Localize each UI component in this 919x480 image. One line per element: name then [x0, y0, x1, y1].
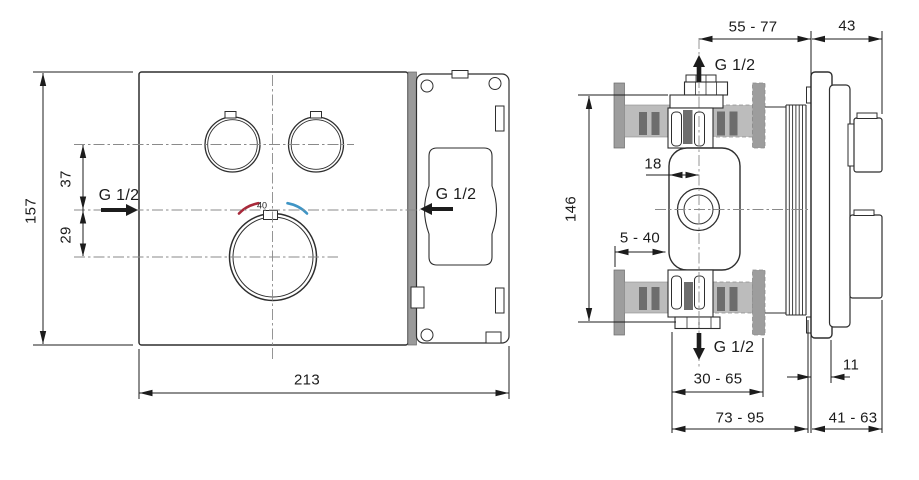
wall-flange-alt-top: [753, 83, 766, 148]
wall-flange-bottom: [614, 270, 625, 335]
box-outlet-cutout: [425, 148, 497, 265]
wall-plate-side: [811, 72, 832, 338]
dim-label-depth-range-top: 55 - 77: [729, 20, 778, 35]
front-view: [139, 71, 509, 346]
dim-label-rough-in-depth: 30 - 65: [694, 372, 743, 387]
dim-label-projection-range: 41 - 63: [829, 411, 878, 426]
box-screw-hole: [421, 80, 433, 92]
dim-label-center-offset: 18: [644, 157, 661, 172]
box-clip: [496, 288, 505, 313]
trim-side: [807, 72, 883, 338]
dial-index-tab: [264, 211, 278, 220]
drawing-linework: [0, 0, 919, 480]
side-top-port-label: G 1/2: [715, 58, 756, 74]
box-screw-hole: [421, 329, 433, 341]
dim-label-trim-projection: 43: [838, 19, 855, 34]
dim-label-plate-thickness: 11: [843, 358, 859, 373]
dim-label-adjustment-range: 5 - 40: [620, 231, 660, 246]
handle-side: [854, 118, 882, 172]
box-clip: [411, 287, 424, 308]
box-screw-hole: [489, 78, 501, 90]
front-inlet-port-label: G 1/2: [99, 188, 140, 204]
side-bottom-port-arrow: [693, 333, 705, 360]
dim-label-body-height: 146: [564, 196, 579, 222]
faceplate-outline: [139, 72, 408, 345]
box-clip: [496, 106, 505, 131]
box-clip: [486, 332, 501, 343]
dim-label-handles-to-inlet: 37: [59, 170, 74, 187]
wall-bar: [625, 105, 672, 137]
wall-flange-alt-bottom: [753, 270, 766, 335]
dim-label-front-height: 157: [24, 198, 39, 224]
threaded-sleeve: [765, 105, 806, 315]
wall-flange-top: [614, 83, 625, 148]
box-top-notch: [452, 71, 468, 79]
faceplate-side: [830, 85, 851, 327]
bottom-union-nut: [675, 317, 720, 329]
dim-label-overall-depth: 73 - 95: [716, 411, 765, 426]
wall-bar: [625, 282, 672, 313]
dim-label-front-width: 213: [294, 373, 320, 388]
dial-side: [850, 215, 882, 298]
front-outlet-port-label: G 1/2: [436, 187, 477, 203]
side-bottom-port-label: G 1/2: [714, 340, 755, 356]
dim-label-inlet-to-dial: 29: [59, 226, 74, 243]
technical-drawing-page: 157 37 29 G 1/2 40 G 1/2 213 55 - 77 43 …: [0, 0, 919, 480]
dial-temperature-mark: 40: [257, 202, 267, 211]
front-inlet-arrow: [101, 204, 138, 216]
side-view: [614, 72, 882, 338]
